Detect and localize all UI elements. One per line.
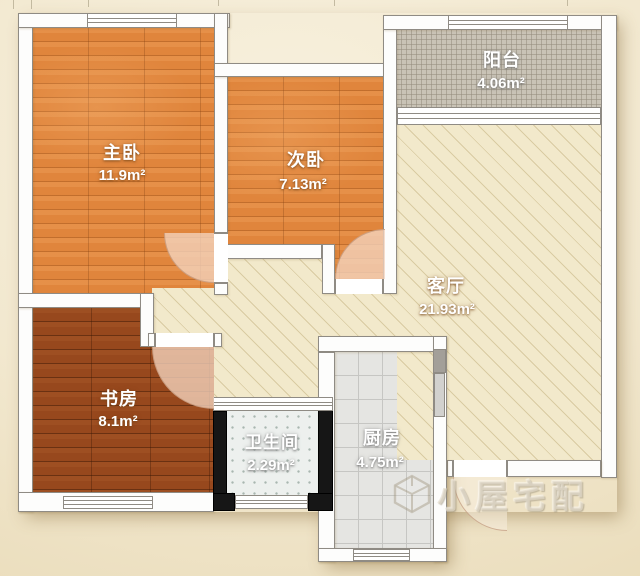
room-name-balcony: 阳台 <box>483 51 521 71</box>
dimension-tick <box>334 0 335 6</box>
dimension-tick <box>88 0 89 7</box>
room-name-study: 书房 <box>100 390 138 410</box>
second-bedroom-jog-wall <box>322 244 335 294</box>
study-door-wall-right <box>214 333 222 347</box>
master-bedroom-window <box>87 13 177 28</box>
study-door-opening <box>155 333 214 347</box>
room-area-study: 8.1m² <box>98 414 137 431</box>
dimension-tick <box>218 0 219 6</box>
room-area-second-bedroom: 7.13m² <box>279 177 327 194</box>
balcony-sliding-window <box>397 107 601 125</box>
room-name-bathroom: 卫生间 <box>245 434 299 453</box>
dimension-tick <box>13 0 14 9</box>
kitchen-window <box>353 549 410 561</box>
room-name-kitchen: 厨房 <box>363 429 401 449</box>
master-bedroom-door-opening <box>214 233 228 283</box>
watermark: 小屋宅配 <box>391 470 589 518</box>
bathroom-door <box>213 397 333 411</box>
room-name-second-bedroom: 次卧 <box>287 151 325 171</box>
room-area-master-bedroom: 11.9m² <box>99 168 146 185</box>
master-bedroom-wall-right <box>214 13 228 233</box>
room-area-living-room: 21.93m² <box>419 302 475 319</box>
bathroom-wall-corner-black <box>213 493 235 511</box>
exterior-wall-left <box>18 13 33 512</box>
kitchen-door-frame <box>433 349 446 373</box>
kitchen-wall-top <box>318 336 447 352</box>
dimension-tick <box>567 0 568 6</box>
room-area-bathroom: 2.29m² <box>247 458 295 475</box>
room-name-living-room: 客厅 <box>427 277 465 297</box>
second-bedroom-door-opening <box>335 279 383 294</box>
bathroom-window <box>235 495 308 509</box>
study-door-wall-left <box>148 333 155 347</box>
watermark-text: 小屋宅配 <box>437 470 589 518</box>
cube-house-logo-icon <box>391 473 433 515</box>
balcony-window <box>448 15 568 30</box>
second-bedroom-wall-bottom <box>214 244 322 259</box>
master-study-divider-wall <box>18 293 152 308</box>
second-bedroom-wall-top <box>214 63 390 77</box>
kitchen-sliding-door <box>434 373 445 417</box>
bedroom-livingroom-divider-wall <box>383 15 397 294</box>
dimension-tick <box>31 0 32 9</box>
floor-plan: 主卧 11.9m² 次卧 7.13m² 阳台 4.06m² 客厅 21.93m²… <box>0 0 640 576</box>
bathroom-wall-corner-black <box>308 493 333 511</box>
room-name-master-bedroom: 主卧 <box>103 144 141 164</box>
bathroom-floor <box>227 411 318 495</box>
study-window <box>63 496 153 509</box>
exterior-wall-right <box>601 15 617 478</box>
room-area-balcony: 4.06m² <box>477 76 525 93</box>
master-bedroom-wall-right-stub <box>214 283 228 295</box>
